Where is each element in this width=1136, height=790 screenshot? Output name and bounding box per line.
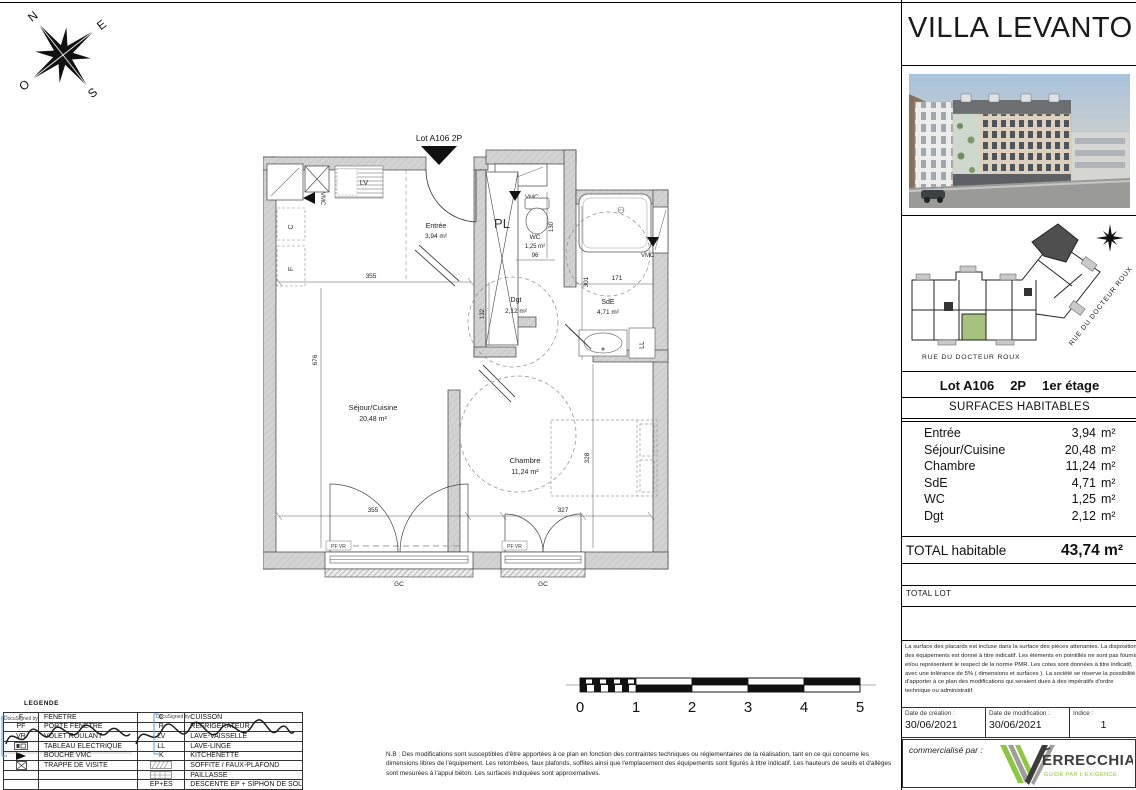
commercialise-label: commercialisé par : [909, 745, 983, 755]
vmc-triangle-icon [303, 192, 315, 204]
legend-code: PF [4, 723, 39, 732]
pf-vr-label: PF VR [331, 544, 346, 550]
legend-code: R [138, 723, 185, 732]
marketing-box: commercialisé par : ERRECCHIA GUIDÉ PAR … [902, 739, 1136, 788]
surface-row: Séjour/Cuisine20,48m² [902, 443, 1136, 460]
legend-row [4, 771, 137, 781]
nb-note: N.B : Des modifications sont susceptible… [386, 750, 894, 778]
cuisson-box [277, 208, 305, 240]
plan-sheet: N E S O [0, 0, 1136, 790]
garde-corps [325, 569, 473, 577]
placard-label: PL [494, 216, 510, 231]
legend-code: C [138, 713, 185, 722]
legend-row: PFPORTE FENÊTRE [4, 723, 137, 733]
legend-row [4, 780, 137, 789]
legend-row: TRAPPE DE VISITE [4, 761, 137, 771]
scale-tick: 1 [632, 699, 640, 716]
legend-row: SOFFITE / FAUX-PLAFOND [138, 761, 302, 771]
date-creation-cell: Date de création : 30/06/2021 [902, 708, 986, 737]
legend-table: FFENÊTRE PFPORTE FENÊTRE VRVOLET ROULANT… [3, 712, 303, 790]
entree-name: Entrée [426, 223, 447, 230]
scale-tick: 3 [744, 699, 752, 716]
surfaces-header: SURFACES HABITABLES [902, 401, 1136, 413]
total-lot-label: TOTAL LOT [906, 589, 951, 598]
surface-row: SdE4,71m² [902, 476, 1136, 493]
lot-number: Lot A106 [940, 378, 994, 393]
legend-row: LVLAVE-VAISSELLE [138, 732, 302, 742]
legend-label: TRAPPE DE VISITE [39, 762, 108, 769]
legend-label: DESCENTE EP + SIPHON DE SOL [185, 781, 302, 788]
entrance-door [426, 170, 476, 222]
scale-tick: 5 [856, 699, 864, 716]
surface-unit: m² [1096, 492, 1123, 506]
dim-sde-width: 171 [612, 275, 623, 282]
legend-row: LLLAVE-LINGE [138, 742, 302, 752]
sde-room: SdE 4,71 m² 171 301 LL VMC [576, 194, 659, 360]
toilet-icon [525, 198, 549, 209]
surface-label: WC [924, 492, 1054, 506]
surface-unit: m² [1096, 509, 1123, 523]
surface-value: 1,25 [1054, 492, 1096, 506]
legend-label: PAILLASSE [185, 772, 227, 779]
dim-sde-depth: 301 [583, 276, 590, 287]
verrecchia-logo: ERRECCHIA GUIDÉ PAR L'EXIGENCE [998, 743, 1133, 786]
logo-text: ERRECCHIA [1042, 752, 1133, 769]
legend-label: LAVE-VAISSELLE [185, 733, 247, 740]
surface-value: 11,24 [1054, 459, 1096, 473]
legend-row: FFENÊTRE [4, 713, 137, 723]
surface-label: Séjour/Cuisine [924, 443, 1054, 457]
chambre-window: PF VR GC [501, 514, 585, 588]
legend-code: K [138, 752, 185, 761]
date-creation-value: 30/06/2021 [905, 719, 982, 731]
dim-wc-width: 96 [532, 253, 539, 259]
legend-code [4, 771, 39, 780]
scale-tick: 4 [800, 699, 808, 716]
scale-tick: 0 [576, 699, 584, 716]
compass-north-label: N [25, 8, 40, 24]
surface-value: 2,12 [1054, 509, 1096, 523]
legend-row: RRÉFRIGÉRATEUR [138, 723, 302, 733]
frigo-label: F [288, 267, 295, 271]
entree-area: 3,94 m² [425, 233, 448, 240]
lot-floor: 1er étage [1042, 378, 1099, 393]
surface-label: Entrée [924, 426, 1054, 440]
dim-wc-depth: 130 [549, 221, 555, 232]
title-block-panel: VILLA LEVANTO [901, 0, 1136, 790]
lave-linge-label: LL [639, 341, 646, 349]
surface-unit: m² [1096, 476, 1123, 490]
wc-name: WC [530, 234, 541, 241]
scale-bar: 0 1 2 3 4 5 [566, 670, 876, 720]
surface-value: 20,48 [1054, 443, 1096, 457]
lot-info-bar: Lot A106 2P 1er étage [902, 373, 1136, 397]
surface-row: Chambre11,24m² [902, 459, 1136, 476]
total-label: TOTAL habitable [902, 543, 1061, 558]
soffite-icon [138, 761, 185, 770]
gc-label: GC [538, 581, 548, 588]
surface-row: Dgt2,12m² [902, 509, 1136, 526]
trappe-visite-icon [4, 761, 39, 770]
vmc-label: VMC [319, 192, 325, 206]
frigo-box [277, 246, 305, 286]
surface-unit: m² [1096, 459, 1123, 473]
dim-chambre-height: 328 [584, 452, 591, 463]
legend-label: KITCHENETTE [185, 752, 239, 759]
electrical-panel-icon [4, 742, 39, 751]
dgt-area: 2,12 m² [505, 308, 528, 315]
compass-east-label: E [94, 17, 109, 33]
surface-value: 3,94 [1054, 426, 1096, 440]
legend-label: PORTE FENÊTRE [39, 723, 103, 730]
vmc-label: VMC [641, 253, 655, 259]
street-label-bottom: RUE DU DOCTEUR ROUX [922, 354, 1020, 361]
surface-row: Entrée3,94m² [902, 426, 1136, 443]
disclaimer-text: La surface des placards est incluse dans… [905, 643, 1136, 696]
legend-code: F [4, 713, 39, 722]
dimensions [276, 278, 654, 548]
date-row: Date de création : 30/06/2021 Date de mo… [902, 707, 1136, 738]
gc-label: GC [394, 581, 404, 588]
dim-dgt: 132 [480, 308, 486, 319]
dim-bottom-sejour: 355 [368, 507, 379, 514]
building-render-image [909, 74, 1130, 208]
dim-sejour-height: 676 [312, 354, 319, 365]
total-value: 43,74 m² [1061, 542, 1136, 560]
compass-south-label: S [85, 85, 100, 101]
chambre-area: 11,24 m² [511, 469, 539, 476]
lot-pointer-arrow-icon [421, 146, 457, 165]
surface-label: Chambre [924, 459, 1054, 473]
surface-label: SdE [924, 476, 1054, 490]
compass-rose-icon: N E S O [8, 0, 118, 110]
indice-value: 1 [1073, 719, 1134, 731]
legend-label: SOFFITE / FAUX-PLAFOND [185, 762, 279, 769]
legend-code [4, 780, 39, 789]
lave-vaisselle-label: LV [360, 178, 369, 187]
surface-label: Dgt [924, 509, 1054, 523]
legend-code: EP+ES [138, 780, 185, 789]
legend-row: CCUISSON [138, 713, 302, 723]
wc-area: 1,25 m² [525, 244, 545, 250]
surface-row: WC1,25m² [902, 492, 1136, 509]
legend-code: LV [138, 732, 185, 741]
garde-corps [501, 569, 585, 577]
sde-area: 4,71 m² [597, 309, 620, 316]
dim-bottom-chambre: 327 [558, 507, 569, 514]
sejour-name: Séjour/Cuisine [349, 403, 398, 412]
surface-unit: m² [1096, 443, 1123, 457]
legend-code: VR [4, 732, 39, 741]
pf-vr-label: PF VR [507, 544, 522, 550]
sde-name: SdE [601, 299, 615, 306]
lot-type: 2P [1010, 378, 1026, 393]
legend-title: LEGENDE [24, 700, 59, 707]
legend-label: LAVE-LINGE [185, 743, 231, 750]
shower-tray-icon [579, 194, 651, 252]
total-row: TOTAL habitable 43,74 m² [902, 539, 1136, 562]
surface-unit: m² [1096, 426, 1123, 440]
scale-tick: 2 [688, 699, 696, 716]
floor-plan: Lot A106 2P VMC LV C F P [263, 132, 683, 590]
date-modification-cell: Date de modification : 30/06/2021 [986, 708, 1070, 737]
date-creation-label: Date de création : [905, 710, 982, 717]
legend-row: BOUCHE VMC [4, 752, 137, 762]
legend-row: VRVOLET ROULANT [4, 732, 137, 742]
paillasse-icon [138, 771, 185, 780]
legend-label: VOLET ROULANT [39, 733, 102, 740]
legend-row: EP+ESDESCENTE EP + SIPHON DE SOL [138, 780, 302, 789]
lot-pointer-label: Lot A106 2P [416, 133, 463, 143]
legend-label: TABLEAU ÉLECTRIQUE [39, 743, 122, 750]
dgt-name: Dgt [511, 297, 522, 304]
legend-code: LL [138, 742, 185, 751]
legend-label: CUISSON [185, 714, 222, 721]
legend-label: FENÊTRE [39, 714, 77, 721]
site-plan: RUE DU DOCTEUR ROUX RUE DU DOCTEUR ROUX [904, 218, 1135, 370]
indice-label: Indice : [1073, 710, 1134, 717]
legend-label: RÉFRIGÉRATEUR [185, 723, 249, 730]
cuisson-label: C [288, 224, 295, 229]
indice-cell: Indice : 1 [1070, 708, 1136, 737]
legend-row: KKITCHENETTE [138, 752, 302, 762]
dim-top: 355 [366, 273, 377, 280]
surface-value: 4,71 [1054, 476, 1096, 490]
logo-tagline: GUIDÉ PAR L'EXIGENCE [1044, 771, 1117, 778]
project-title: VILLA LEVANTO [908, 12, 1133, 45]
legend-label: BOUCHE VMC [39, 752, 91, 759]
chambre-name: Chambre [510, 456, 541, 465]
sejour-area: 20,48 m² [359, 416, 387, 423]
legend-row: PAILLASSE [138, 771, 302, 781]
compass-west-label: O [16, 77, 32, 94]
bed [551, 420, 657, 496]
surfaces-table: Entrée3,94m² Séjour/Cuisine20,48m² Chamb… [902, 426, 1136, 525]
site-lot-a106-highlight [962, 314, 986, 340]
date-modification-value: 30/06/2021 [989, 719, 1066, 731]
bouche-vmc-icon [4, 752, 39, 761]
site-compass-icon [1096, 224, 1124, 252]
date-modification-label: Date de modification : [989, 710, 1066, 717]
